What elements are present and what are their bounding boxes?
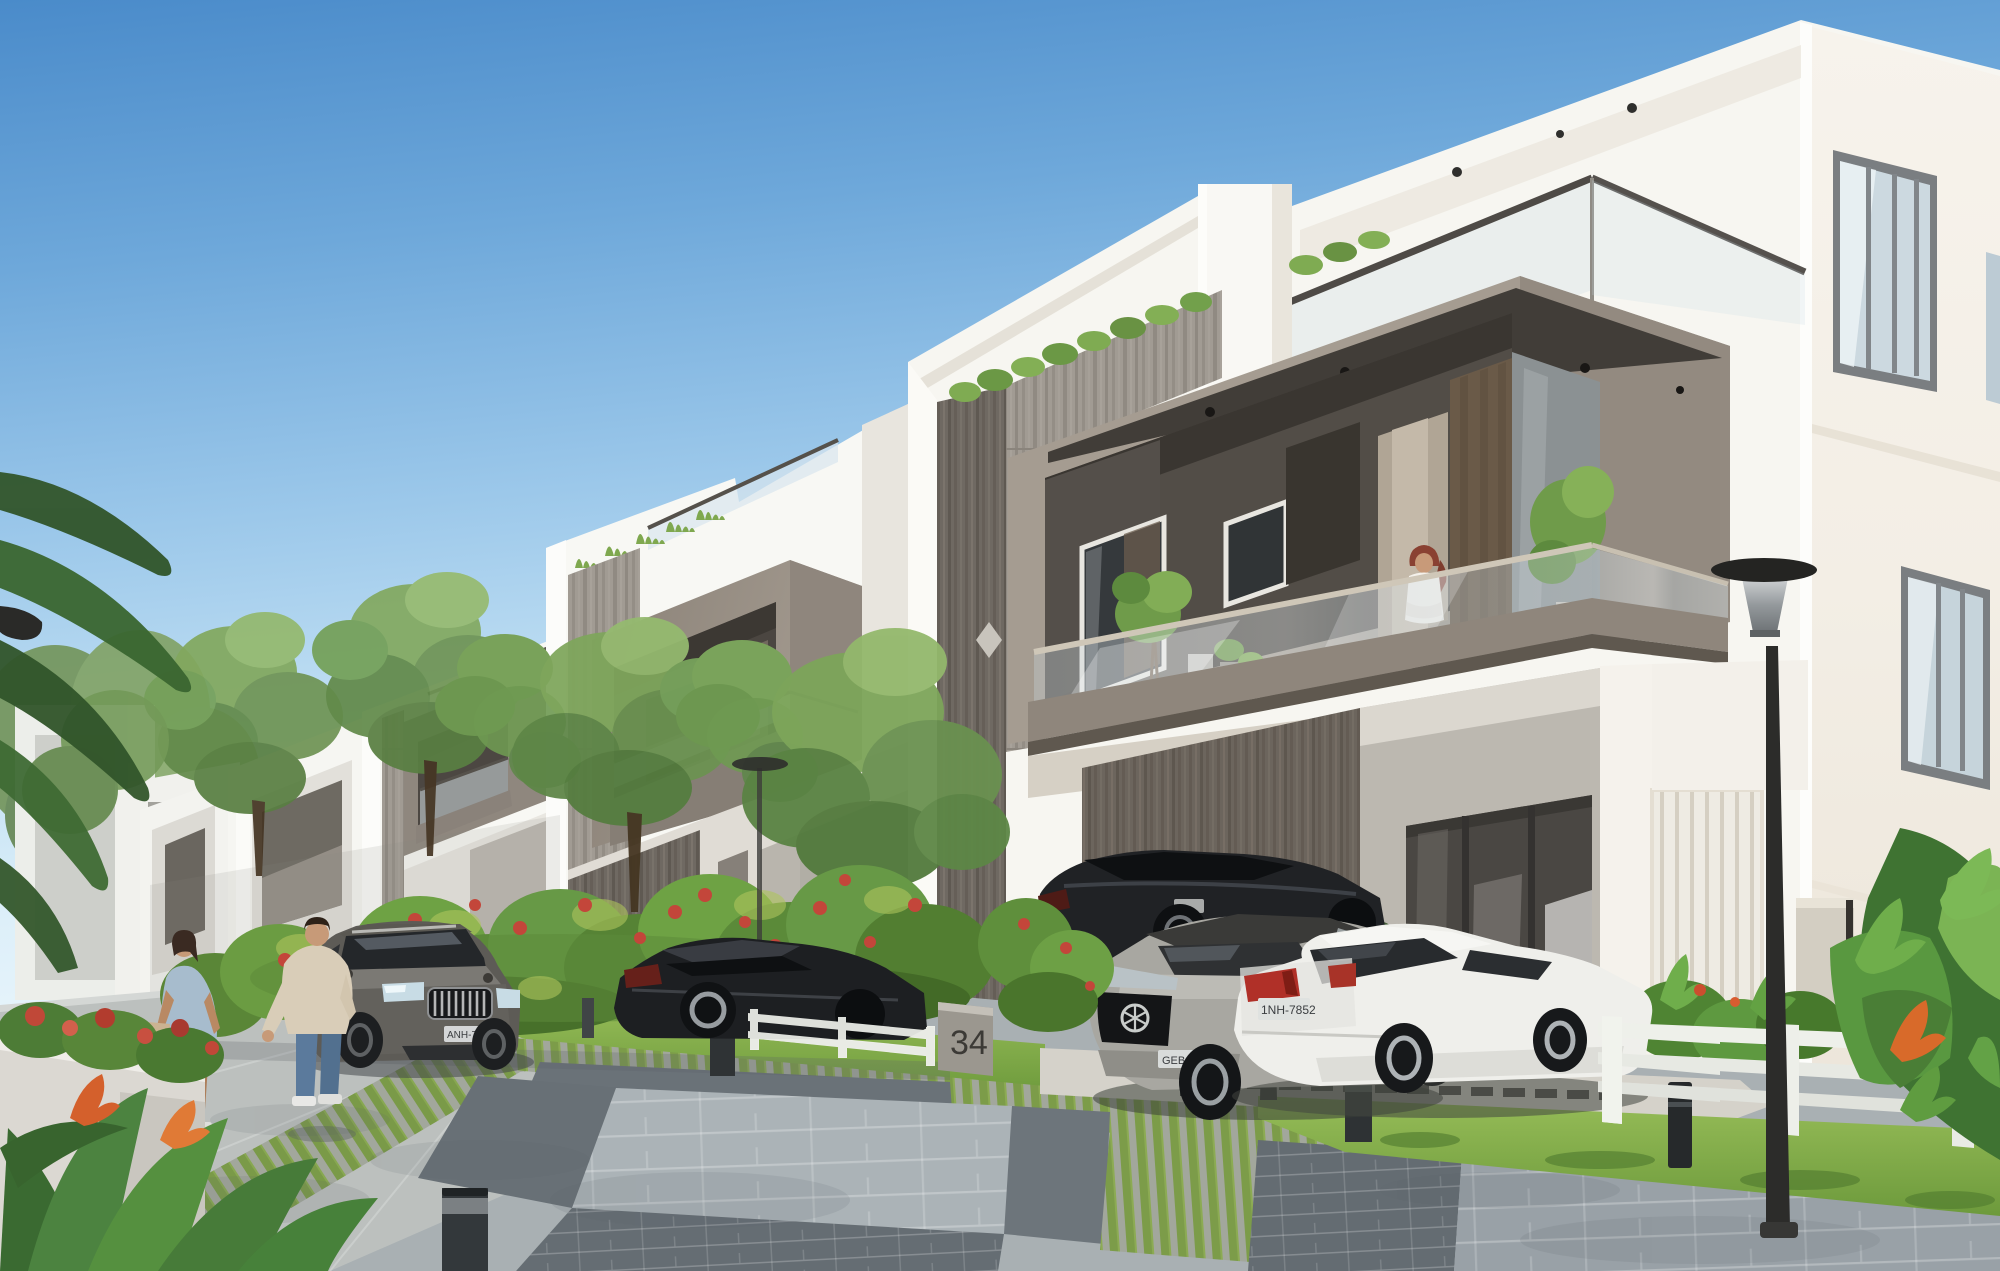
svg-text:1NH-7852: 1NH-7852	[1261, 1003, 1316, 1017]
svg-text:34: 34	[950, 1024, 988, 1062]
